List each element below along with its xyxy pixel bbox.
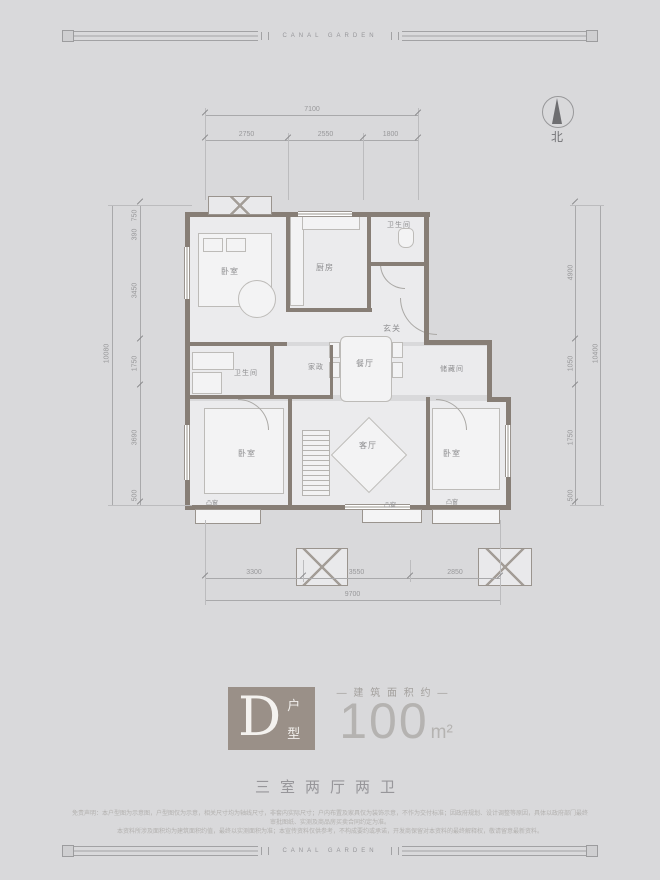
dimension-line — [575, 205, 576, 505]
room-label-bedroom: 卧室 — [222, 448, 272, 459]
shaft — [478, 548, 532, 586]
bottom-border: CANAL GARDEN — [62, 845, 598, 857]
dimension-line — [205, 600, 500, 601]
dimension-line — [205, 115, 419, 116]
area-value-row: 100 m² — [336, 694, 456, 748]
extension-line — [570, 505, 604, 506]
unit-type-badge: D 户 型 — [228, 687, 315, 750]
dimension-tick — [572, 198, 578, 204]
dim-top-segment: 2750 — [205, 131, 288, 138]
extension-line — [288, 133, 289, 200]
north-arrow-icon — [552, 98, 562, 124]
border-endcap — [62, 845, 74, 857]
dim-right-segment: 1750 — [568, 418, 575, 458]
border-cap — [261, 847, 269, 855]
layout-summary: 三室两厅两卫 — [0, 776, 660, 797]
unit-type-suffix: 户 型 — [281, 687, 300, 750]
room-label-storage: 储藏间 — [424, 364, 480, 374]
dimension-line — [600, 205, 601, 505]
dim-left-segment: 3690 — [132, 418, 139, 458]
wardrobe — [302, 430, 330, 496]
dim-right-segment: 1050 — [568, 344, 575, 384]
dim-left-segment: 390 — [132, 215, 139, 255]
dim-right-segment: 4900 — [568, 253, 575, 293]
brand-text: CANAL GARDEN — [272, 33, 387, 39]
extension-line — [363, 133, 364, 200]
room-label-bedroom: 卧室 — [427, 448, 477, 459]
dim-right-segment: 500 — [568, 476, 575, 516]
border-endcap — [62, 30, 74, 42]
unit-type-suffix-char: 户 — [287, 695, 300, 714]
wall — [424, 212, 429, 345]
brand-text: CANAL GARDEN — [272, 848, 387, 854]
chair — [392, 362, 403, 378]
bay-window-label: 凸窗 — [374, 500, 406, 509]
dimension-line — [205, 578, 500, 579]
room-label-laundry: 家政 — [300, 362, 332, 372]
dimension-line — [205, 140, 419, 141]
room-label-dining: 餐厅 — [340, 358, 390, 369]
dim-bottom-total: 9700 — [205, 591, 500, 598]
unit-type-suffix-char: 型 — [287, 723, 300, 742]
disclaimer-line: 免责声明：本户型图为示意图，户型图仅为示意，相关尺寸均为轴线尺寸，非套内实际尺寸… — [70, 810, 590, 828]
border-line — [74, 846, 258, 856]
wall — [424, 340, 492, 345]
room-label-kitchen: 厨房 — [300, 262, 350, 273]
dim-top-segment: 2550 — [288, 131, 363, 138]
equipment-platform — [208, 196, 272, 215]
border-line — [402, 846, 586, 856]
border-cap — [391, 847, 399, 855]
floor-plan-page: CANAL GARDEN 北 — [0, 0, 660, 880]
border-endcap — [586, 845, 598, 857]
pillow — [226, 238, 246, 252]
dim-top-segment: 1800 — [363, 131, 418, 138]
border-cap — [391, 32, 399, 40]
wall — [487, 340, 492, 402]
disclaimer-line: 本资料所涉及面积均为建筑面积约值，最终以实测面积为准；本宣传资料仅供参考，不构成… — [70, 828, 590, 837]
room-label-bathroom: 卫生间 — [220, 368, 272, 378]
border-line — [74, 31, 258, 41]
shower — [192, 372, 222, 394]
chair — [392, 342, 403, 358]
dim-right-total: 10400 — [593, 334, 600, 374]
extension-line — [570, 205, 604, 206]
wall — [288, 397, 292, 509]
border-endcap — [586, 30, 598, 42]
dimension-line — [140, 205, 141, 505]
disclaimer: 免责声明：本户型图为示意图，户型图仅为示意，相关尺寸均为轴线尺寸，非套内实际尺寸… — [70, 810, 590, 837]
window — [505, 425, 511, 477]
bay-window — [432, 509, 500, 524]
bay-window-label: 凸窗 — [436, 497, 468, 506]
bay-window-label: 凸窗 — [196, 498, 228, 507]
bay-window — [362, 509, 422, 523]
room-label-foyer: 玄关 — [372, 323, 412, 334]
extension-line — [108, 505, 192, 506]
wall — [286, 308, 372, 312]
window — [184, 247, 190, 299]
window — [298, 211, 352, 217]
extension-line — [418, 108, 419, 200]
dining-table — [340, 336, 392, 402]
toilet — [398, 228, 414, 248]
dim-bottom-segment: 2850 — [410, 569, 500, 576]
dim-left-segment: 500 — [132, 476, 139, 516]
kitchen-counter — [302, 216, 360, 230]
wall — [286, 212, 290, 312]
wall — [185, 395, 333, 399]
wall — [367, 262, 428, 266]
extension-line — [205, 108, 206, 200]
border-cap — [261, 32, 269, 40]
room-label-bathroom: 卫生间 — [375, 220, 423, 230]
room-label-bedroom: 卧室 — [205, 266, 255, 277]
dim-left-total: 10080 — [104, 334, 111, 374]
dim-top-total: 7100 — [205, 106, 419, 113]
north-label: 北 — [542, 128, 572, 145]
unit-type-letter: D — [228, 687, 281, 750]
dimension-line — [112, 205, 113, 505]
round-rug — [238, 280, 276, 318]
room-label-living: 客厅 — [343, 440, 393, 451]
border-line — [402, 31, 586, 41]
pillow — [203, 238, 223, 252]
dim-bottom-segment: 3550 — [303, 569, 410, 576]
window — [184, 425, 190, 480]
area-value: 100 — [339, 694, 428, 748]
dim-left-segment: 1750 — [132, 344, 139, 384]
extension-line — [500, 520, 501, 605]
dim-left-segment: 3450 — [132, 271, 139, 311]
area-unit: m² — [431, 722, 453, 744]
extension-line — [108, 205, 192, 206]
top-border: CANAL GARDEN — [62, 30, 598, 42]
dim-bottom-segment: 3300 — [205, 569, 303, 576]
